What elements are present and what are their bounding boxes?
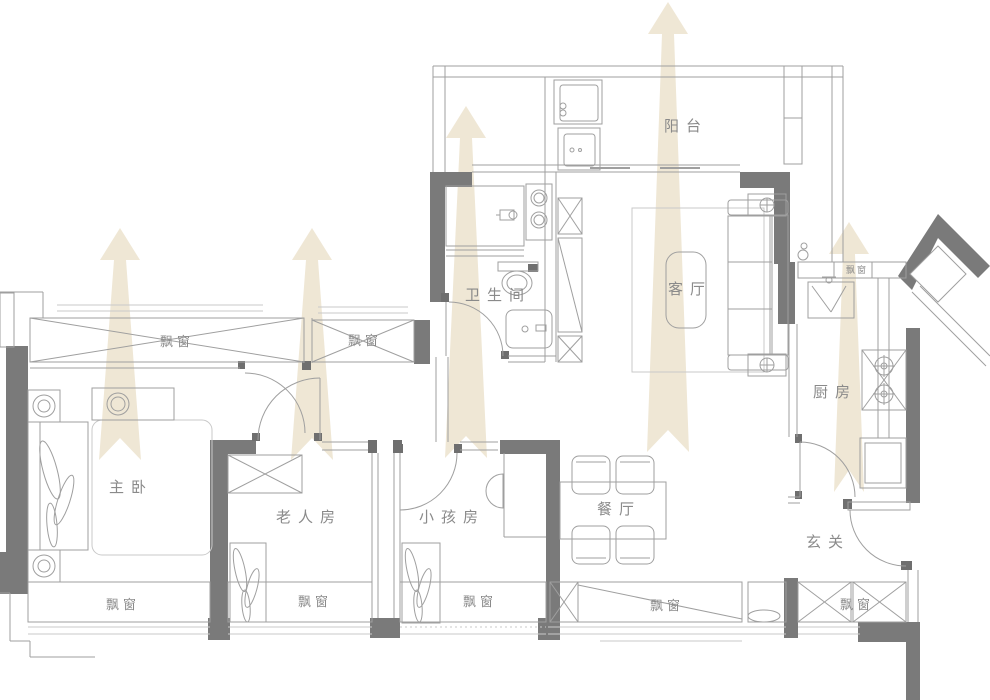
label-kitchen: 厨房 — [813, 384, 857, 401]
label-bay-window: 飘窗 — [298, 594, 332, 609]
label-bay-window: 飘窗 — [840, 597, 874, 612]
label-bay-window: 飘窗 — [650, 598, 684, 613]
kids-door-arc — [400, 453, 457, 510]
label-bay-window: 飘窗 — [160, 334, 194, 349]
label-kids-room: 小孩房 — [419, 509, 485, 526]
label-bay-window: 飘窗 — [348, 333, 382, 348]
master-bed — [28, 422, 88, 550]
entry-door-leaf — [848, 502, 910, 510]
label-living-room: 客厅 — [668, 281, 712, 298]
kitchen-cabinet — [860, 438, 906, 488]
label-bay-window: 飘窗 — [846, 264, 868, 275]
label-bay-window: 飘窗 — [463, 594, 497, 609]
tv-cabinets — [558, 198, 582, 362]
label-entryway: 玄关 — [806, 534, 850, 551]
entry-door-arc — [850, 510, 906, 566]
airflow-arrow-living — [647, 2, 689, 452]
label-bay-window: 飘窗 — [106, 597, 140, 612]
elder-bed — [230, 543, 266, 622]
pipe-icon — [801, 243, 807, 249]
floor-plan: 阳台 客厅 卫生间 主卧 老人房 小孩房 餐厅 厨房 玄关 飘窗 飘窗 飘窗 飘… — [0, 0, 990, 700]
desk-chair — [486, 474, 503, 508]
airflow-arrow-master — [99, 228, 141, 460]
washing-machines — [554, 80, 602, 170]
airflow-arrows — [99, 2, 869, 492]
label-elder-room: 老人房 — [276, 509, 342, 526]
label-bathroom: 卫生间 — [465, 287, 531, 304]
floor-plan-canvas: 阳台 客厅 卫生间 主卧 老人房 小孩房 餐厅 厨房 玄关 飘窗 飘窗 飘窗 飘… — [0, 0, 990, 700]
bay-windows-bottom — [0, 582, 906, 657]
bay-windows-top — [0, 292, 414, 433]
label-master-bedroom: 主卧 — [109, 479, 153, 496]
kids-bed — [402, 543, 440, 623]
label-balcony: 阳台 — [664, 118, 708, 135]
stove — [862, 350, 906, 410]
label-dining-room: 餐厅 — [597, 501, 641, 518]
bedroom-furniture — [228, 378, 546, 623]
airflow-arrow-bath — [445, 106, 487, 458]
